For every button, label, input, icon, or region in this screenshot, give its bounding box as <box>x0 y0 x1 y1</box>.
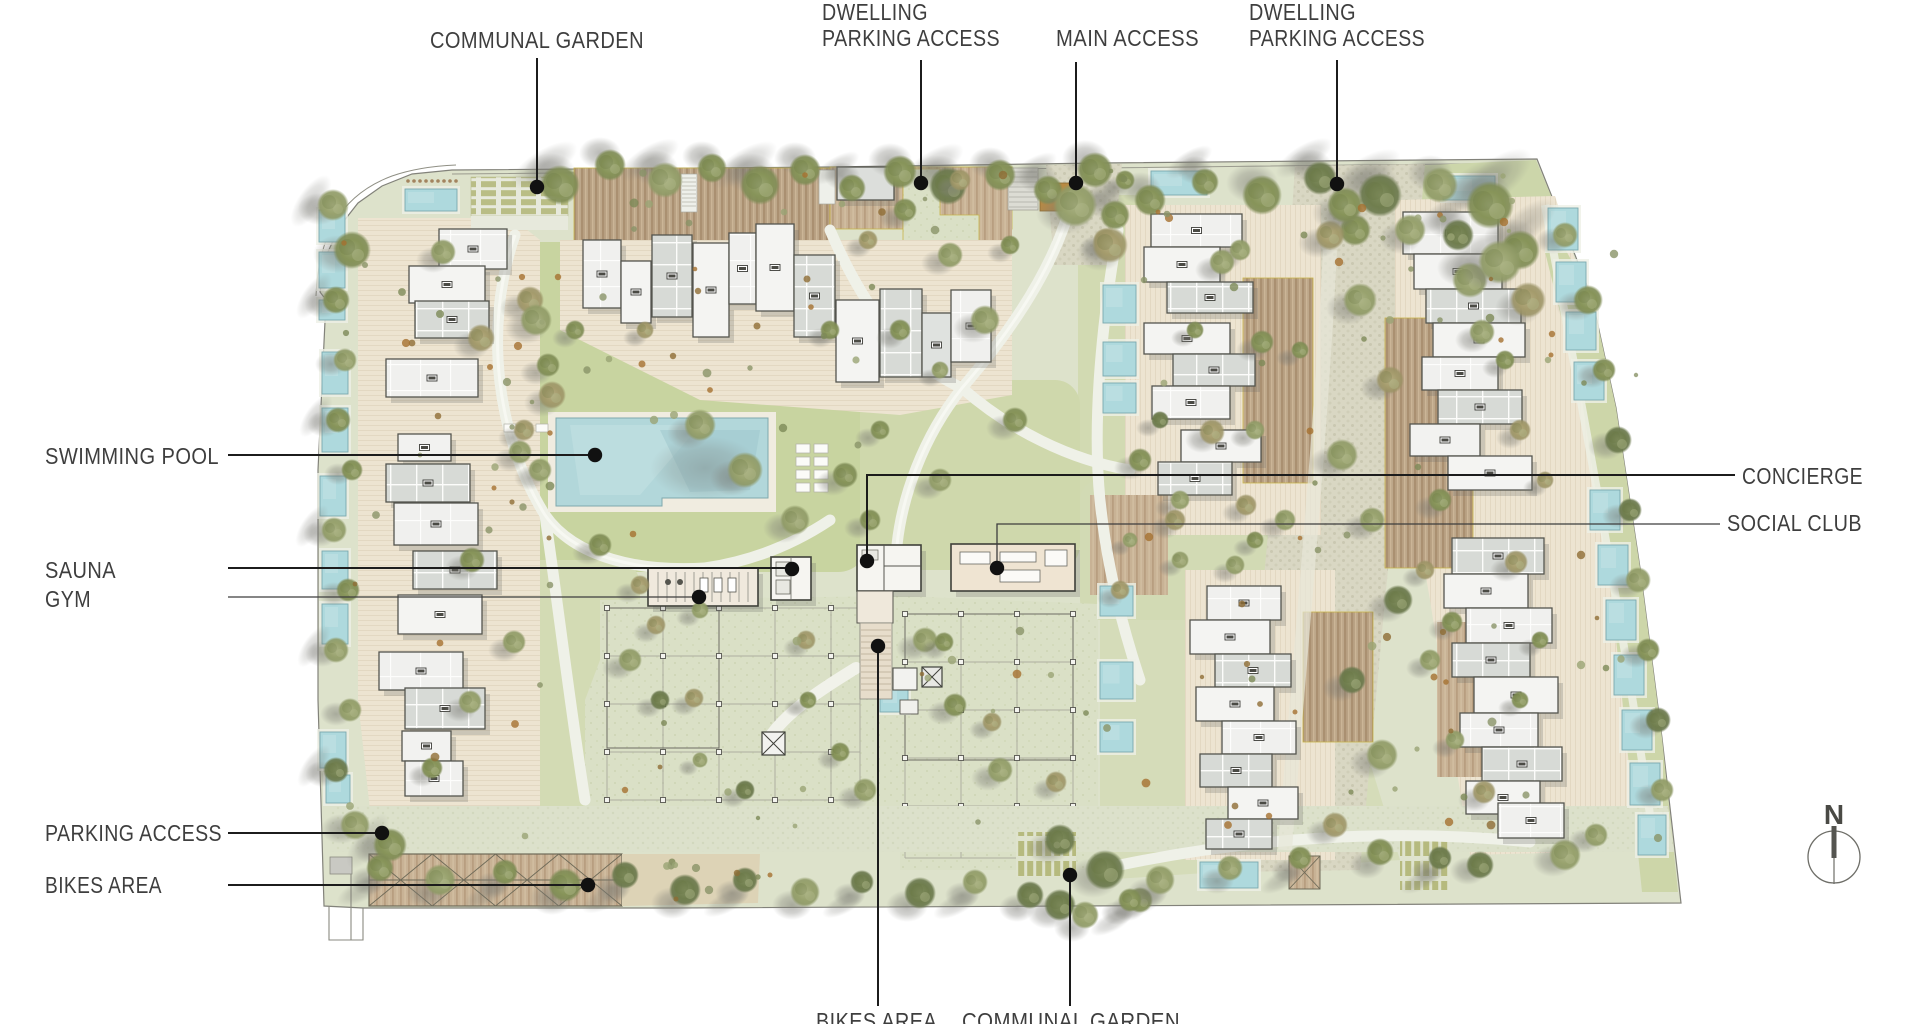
svg-text:BIKES AREA: BIKES AREA <box>45 872 162 898</box>
svg-text:PARKING ACCESS: PARKING ACCESS <box>822 25 1000 51</box>
svg-text:BIKES AREA: BIKES AREA <box>816 1008 937 1024</box>
svg-text:PARKING ACCESS: PARKING ACCESS <box>1249 25 1425 51</box>
svg-text:PARKING ACCESS: PARKING ACCESS <box>45 820 222 846</box>
svg-text:SWIMMING POOL: SWIMMING POOL <box>45 443 219 469</box>
svg-text:DWELLING: DWELLING <box>1249 0 1356 25</box>
svg-text:SAUNA: SAUNA <box>45 557 116 583</box>
svg-text:N: N <box>1824 799 1844 830</box>
svg-text:COMMUNAL GARDEN: COMMUNAL GARDEN <box>962 1008 1180 1024</box>
svg-text:COMMUNAL GARDEN: COMMUNAL GARDEN <box>430 27 644 53</box>
svg-text:MAIN ACCESS: MAIN ACCESS <box>1056 25 1199 51</box>
svg-text:CONCIERGE: CONCIERGE <box>1742 463 1863 489</box>
svg-text:GYM: GYM <box>45 586 91 612</box>
svg-text:SOCIAL CLUB: SOCIAL CLUB <box>1727 510 1862 536</box>
svg-text:DWELLING: DWELLING <box>822 0 928 25</box>
